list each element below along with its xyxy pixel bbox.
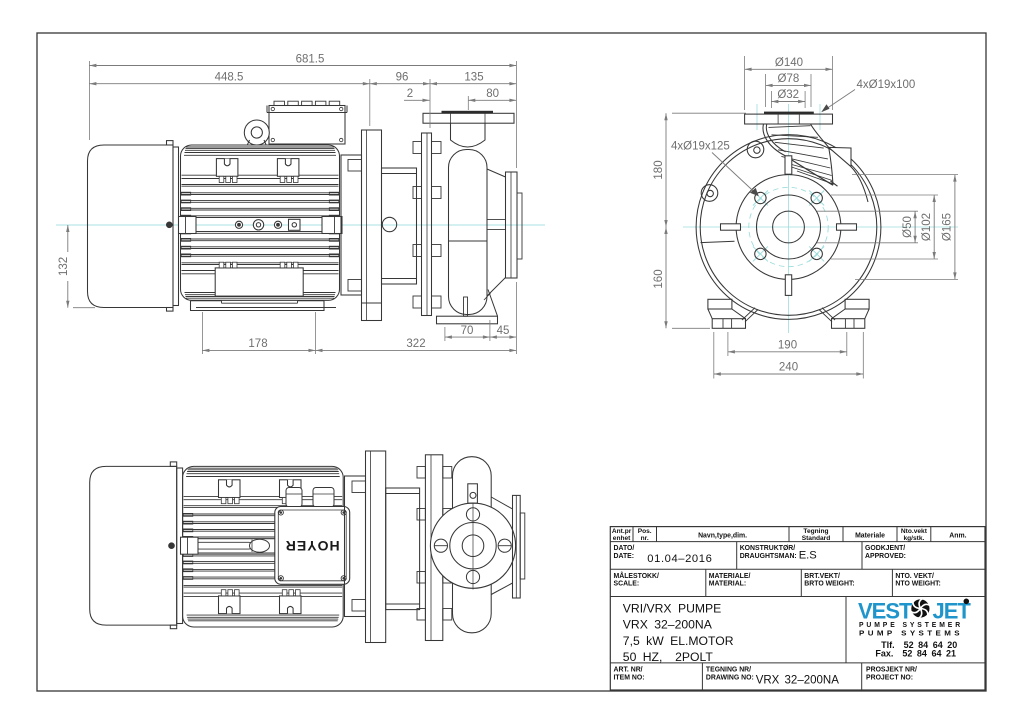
- svg-text:180: 180: [653, 160, 665, 179]
- svg-text:DATO/: DATO/: [614, 545, 635, 552]
- svg-text:Ø102: Ø102: [921, 213, 933, 241]
- svg-text:VRX 32–200NA: VRX 32–200NA: [756, 675, 840, 687]
- svg-text:ART. NR/: ART. NR/: [614, 667, 643, 674]
- svg-text:Materiale: Materiale: [855, 533, 885, 540]
- svg-text:70: 70: [461, 325, 474, 337]
- svg-text:01.04–2016: 01.04–2016: [647, 553, 712, 565]
- svg-text:Ø32: Ø32: [777, 89, 799, 101]
- svg-text:PROSJEKT NR/: PROSJEKT NR/: [866, 667, 917, 674]
- svg-text:Ø78: Ø78: [778, 73, 800, 85]
- svg-text:APPROVED:: APPROVED:: [865, 553, 906, 560]
- svg-text:MATERIALE/: MATERIALE/: [709, 573, 751, 580]
- svg-text:448.5: 448.5: [215, 72, 244, 84]
- svg-text:96: 96: [396, 72, 409, 84]
- svg-text:SCALE:: SCALE:: [614, 581, 640, 588]
- svg-text:BRTO WEIGHT:: BRTO WEIGHT:: [804, 581, 854, 588]
- svg-text:NTO. VEKT/: NTO. VEKT/: [895, 573, 934, 580]
- svg-text:HOYER: HOYER: [285, 538, 340, 554]
- svg-text:VRI/VRX PUMPE: VRI/VRX PUMPE: [623, 602, 722, 616]
- svg-text:2: 2: [407, 88, 413, 100]
- svg-text:Navn,type,dim.: Navn,type,dim.: [698, 533, 747, 540]
- svg-text:MÅLESTOKK/: MÅLESTOKK/: [614, 571, 660, 580]
- svg-text:KONSTRUKTØR/: KONSTRUKTØR/: [740, 545, 796, 552]
- svg-text:178: 178: [248, 338, 267, 350]
- svg-text:7,5 kW EL.MOTOR: 7,5 kW EL.MOTOR: [623, 634, 734, 648]
- svg-text:Anm.: Anm.: [949, 533, 966, 540]
- svg-text:45: 45: [497, 325, 510, 337]
- svg-text:PROJECT NO:: PROJECT NO:: [866, 674, 913, 681]
- svg-text:BRT.VEKT/: BRT.VEKT/: [804, 573, 840, 580]
- svg-text:DATE:: DATE:: [614, 553, 635, 560]
- svg-text:322: 322: [406, 338, 425, 350]
- svg-text:DRAWING NO:: DRAWING NO:: [706, 674, 754, 681]
- svg-text:80: 80: [486, 88, 499, 100]
- svg-text:DRAUGHTSMAN:: DRAUGHTSMAN:: [740, 553, 797, 560]
- svg-text:4xØ19x125: 4xØ19x125: [671, 141, 730, 153]
- svg-text:132: 132: [58, 257, 70, 276]
- svg-text:NTO WEIGHT:: NTO WEIGHT:: [895, 581, 940, 588]
- svg-text:135: 135: [464, 72, 483, 84]
- svg-text:Ø50: Ø50: [902, 216, 914, 238]
- svg-text:50 HZ, 2POLT: 50 HZ, 2POLT: [623, 650, 714, 664]
- svg-text:Standard: Standard: [802, 535, 831, 542]
- svg-text:PUMP SYSTEMS: PUMP SYSTEMS: [859, 628, 963, 637]
- svg-text:GODKJENT/: GODKJENT/: [865, 545, 905, 552]
- svg-text:Fax. 52 84 64 21: Fax. 52 84 64 21: [875, 648, 956, 658]
- svg-text:160: 160: [653, 269, 665, 288]
- svg-text:Ø165: Ø165: [942, 213, 954, 241]
- svg-text:190: 190: [778, 339, 797, 351]
- svg-text:enhet: enhet: [613, 535, 631, 542]
- svg-text:TEGNING NR/: TEGNING NR/: [706, 667, 751, 674]
- svg-text:Ø140: Ø140: [775, 57, 803, 69]
- svg-text:E.S: E.S: [799, 550, 817, 562]
- svg-text:MATERIAL:: MATERIAL:: [709, 581, 746, 588]
- svg-text:681.5: 681.5: [296, 53, 325, 65]
- svg-text:ITEM NO:: ITEM NO:: [614, 674, 645, 681]
- svg-text:240: 240: [779, 362, 798, 374]
- svg-text:nr.: nr.: [641, 535, 649, 542]
- svg-text:4xØ19x100: 4xØ19x100: [857, 79, 916, 91]
- svg-text:VRX 32–200NA: VRX 32–200NA: [623, 618, 713, 632]
- svg-text:kg/stk.: kg/stk.: [903, 535, 924, 542]
